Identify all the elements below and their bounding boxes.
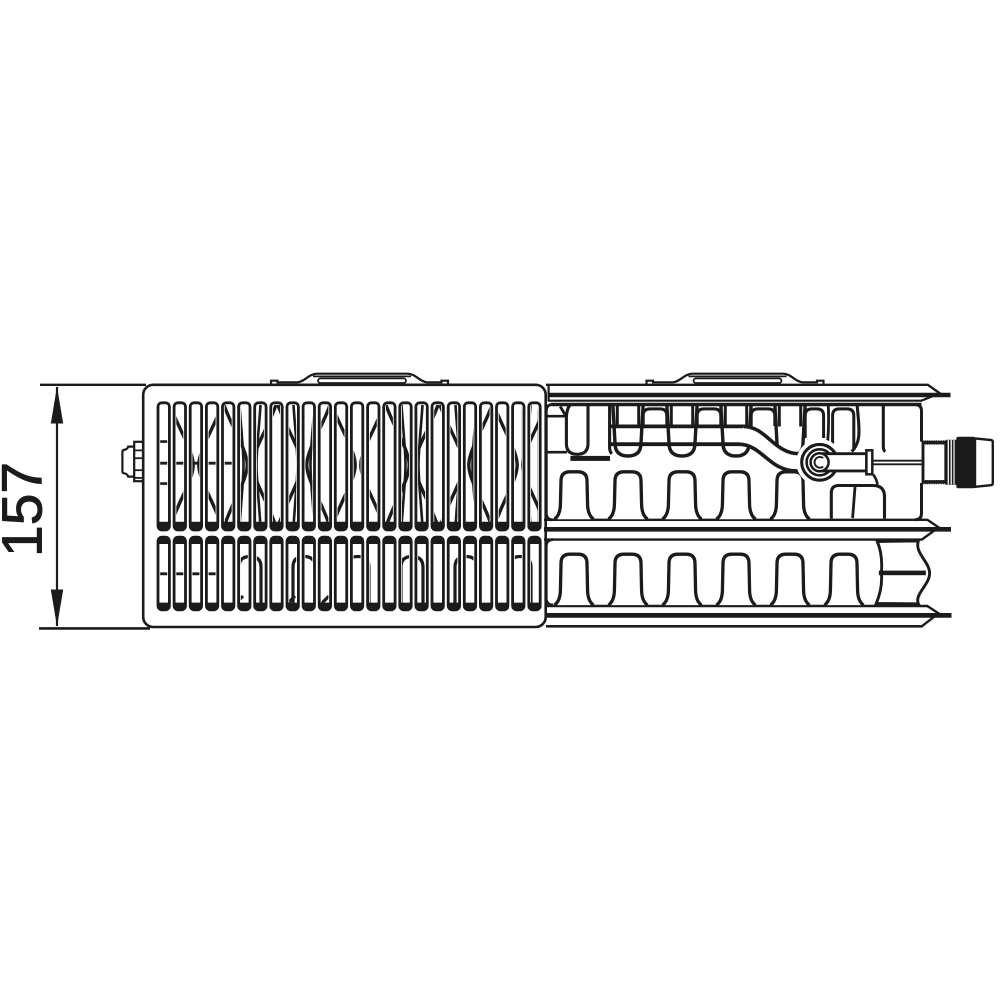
svg-text:157: 157 <box>0 462 54 557</box>
